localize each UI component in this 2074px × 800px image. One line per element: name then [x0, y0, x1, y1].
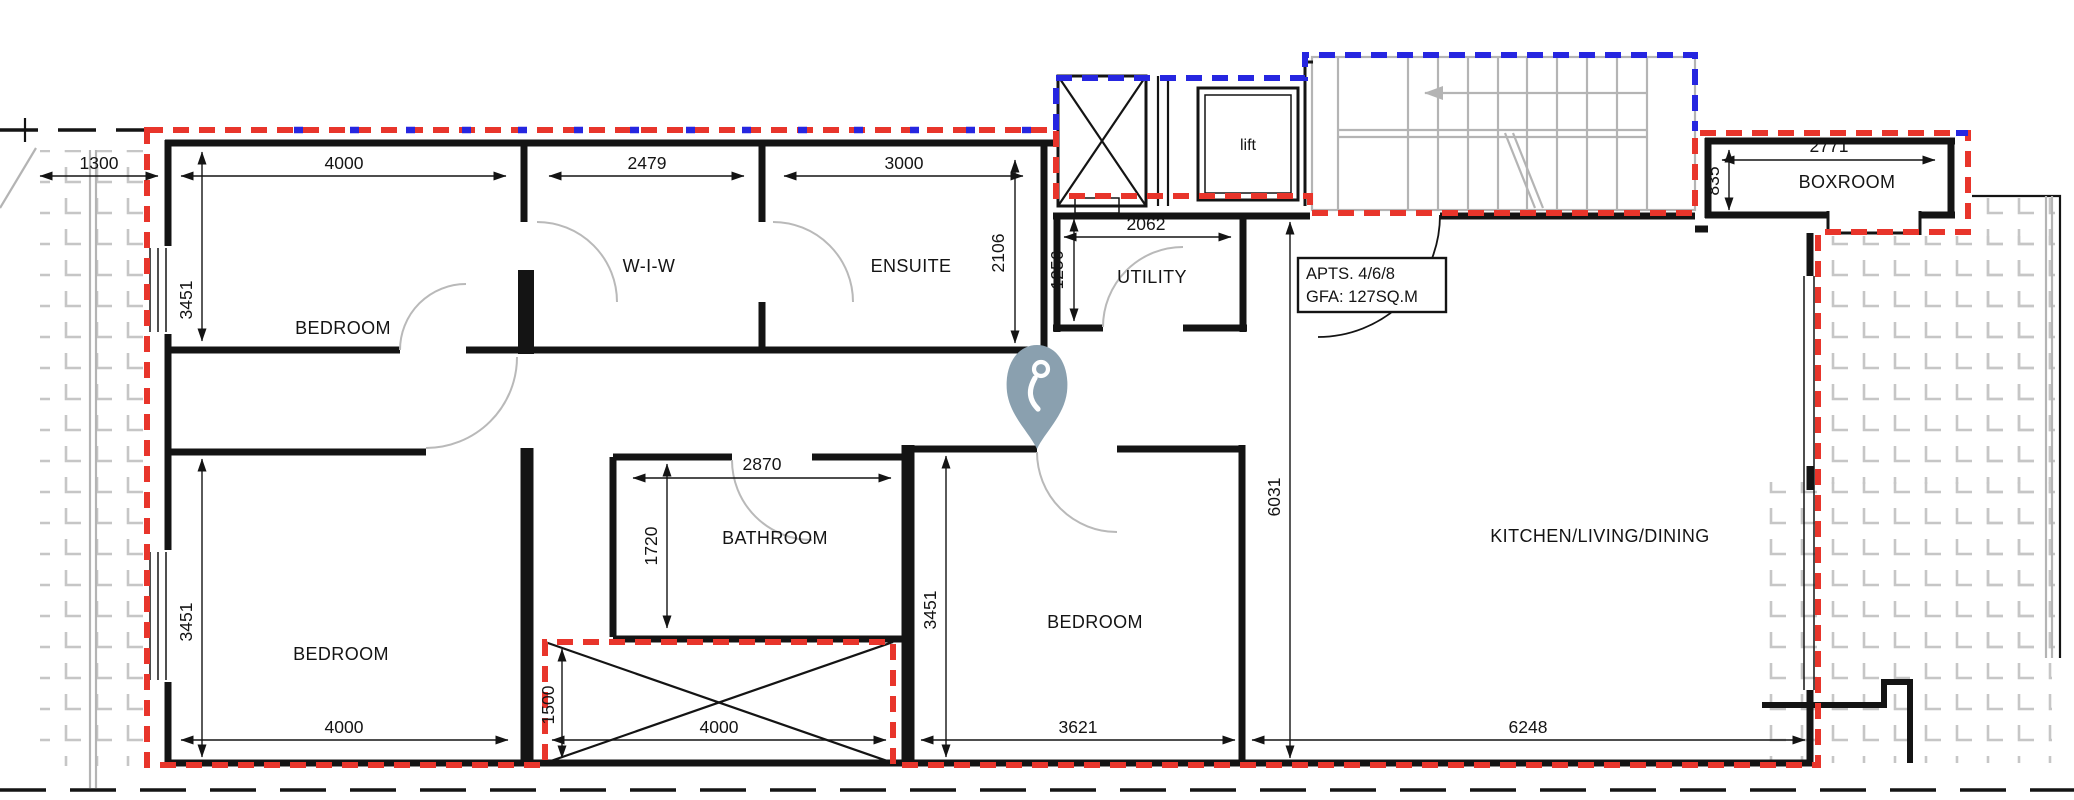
door-arc-bedroom2 — [426, 357, 517, 448]
dim-bedroom1-w: 4000 — [325, 153, 364, 173]
dim-terrace-left: 1300 — [80, 153, 119, 173]
room-label-wiw: W-I-W — [623, 256, 676, 276]
room-label-utility: UTILITY — [1117, 267, 1187, 287]
annotation-line2: GFA: 127SQ.M — [1306, 288, 1418, 306]
annotation-line1: APTS. 4/6/8 — [1306, 265, 1395, 283]
door-arc-bedroom3 — [1037, 452, 1117, 532]
location-pin[interactable] — [1007, 345, 1068, 449]
dim-shaft-w: 4000 — [700, 717, 739, 737]
dim-wiw-w: 2479 — [628, 153, 667, 173]
door-arc-utility — [1103, 247, 1183, 327]
dim-bedroom1-h: 3451 — [176, 281, 196, 320]
door-arc-bedroom1 — [400, 284, 466, 350]
door-arc-wiw — [537, 222, 617, 302]
lift-core — [1058, 62, 1313, 213]
room-label-bathroom: BATHROOM — [722, 528, 828, 548]
room-label-bedroom3: BEDROOM — [1047, 612, 1143, 632]
staircase — [1312, 57, 1695, 210]
dim-bedroom2-w: 4000 — [325, 717, 364, 737]
walls — [146, 138, 1955, 765]
room-label-boxroom: BOXROOM — [1799, 172, 1896, 192]
dim-bathroom-h: 1720 — [641, 526, 661, 565]
dim-ensuite-w: 3000 — [885, 153, 924, 173]
apartment-annotation: APTS. 4/6/8 GFA: 127SQ.M — [1298, 258, 1446, 312]
dim-bedroom2-h: 3451 — [176, 603, 196, 642]
dim-bedroom3-h: 3451 — [920, 591, 940, 630]
dim-bathroom-w: 2870 — [743, 454, 782, 474]
dim-ensuite-h: 2106 — [988, 234, 1008, 273]
dim-kitchen-w: 6248 — [1509, 717, 1548, 737]
dim-utility-w: 2062 — [1127, 214, 1166, 234]
room-label-bedroom1: BEDROOM — [295, 318, 391, 338]
terrace-hatching — [0, 148, 2060, 788]
dim-utility-h: 1256 — [1047, 251, 1067, 290]
room-label-kitchen: KITCHEN/LIVING/DINING — [1490, 526, 1709, 546]
dim-kitchen-h: 6031 — [1264, 478, 1284, 517]
floorplan-canvas: 1300 4000 2479 3000 2106 2062 1256 3451 … — [0, 0, 2074, 800]
dim-shaft-h: 1500 — [538, 685, 558, 724]
door-arc-ensuite — [773, 222, 853, 302]
dim-boxroom-h: 835 — [1703, 166, 1723, 195]
room-label-bedroom2: BEDROOM — [293, 644, 389, 664]
dim-boxroom-w: 2771 — [1810, 136, 1849, 156]
floorplan-drawing: 1300 4000 2479 3000 2106 2062 1256 3451 … — [0, 0, 2074, 800]
room-label-ensuite: ENSUITE — [871, 256, 952, 276]
room-label-lift: lift — [1240, 137, 1257, 154]
dim-bedroom3-w: 3621 — [1059, 717, 1098, 737]
pin-body[interactable] — [1007, 345, 1068, 449]
